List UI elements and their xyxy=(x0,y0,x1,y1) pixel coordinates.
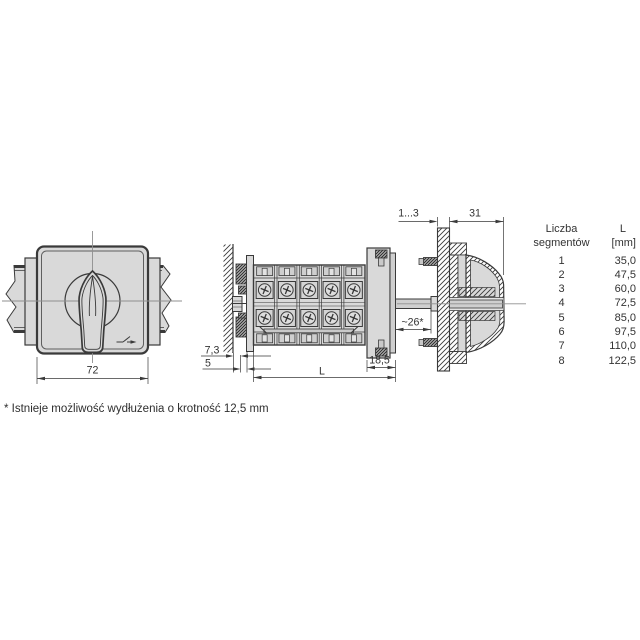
length-value: 122,5 xyxy=(596,354,640,368)
handle-front xyxy=(79,271,106,352)
length-value: 97,5 xyxy=(596,325,640,339)
segments-count: 4 xyxy=(527,296,596,310)
panel-view: 1...3 31 xyxy=(397,208,526,372)
dim-31-label: 31 xyxy=(469,208,481,220)
dim-L-label: L xyxy=(319,366,325,378)
rail-clamp-left xyxy=(25,258,37,345)
handle-knob-section xyxy=(450,243,505,364)
length-value: 47,5 xyxy=(596,268,640,282)
segments-count: 3 xyxy=(527,282,596,296)
footnote: * Istnieje możliwość wydłużenia o krotno… xyxy=(4,402,269,417)
segments-count: 6 xyxy=(527,325,596,339)
table-row: 360,0 xyxy=(527,282,640,296)
dim-1-3-label: 1...3 xyxy=(398,208,419,220)
dim-72-label: 72 xyxy=(87,365,99,377)
segments-count: 5 xyxy=(527,311,596,325)
panel-stud-bottom xyxy=(419,339,438,347)
table-row: 7110,0 xyxy=(527,339,640,353)
table-header-length-line2: [mm] xyxy=(596,236,636,250)
segments-count: 1 xyxy=(527,254,596,268)
mounting-bracket xyxy=(233,256,254,352)
table-header-segments-line1: Liczba xyxy=(527,222,596,236)
length-value: 110,0 xyxy=(596,339,640,353)
table-row: 472,5 xyxy=(527,296,640,310)
length-value: 35,0 xyxy=(596,254,640,268)
dim-26-label: ~26* xyxy=(401,317,423,329)
table-row: 8122,5 xyxy=(527,354,640,368)
length-value: 85,0 xyxy=(596,311,640,325)
dim-7-3-label: 7,3 xyxy=(205,345,220,357)
length-value: 72,5 xyxy=(596,296,640,310)
drawing-page: 72 xyxy=(0,0,640,640)
front-plate xyxy=(367,248,396,358)
mounting-wall xyxy=(224,244,234,353)
mounting-panel xyxy=(438,228,450,371)
dimension-table: Liczba segmentów L [mm] 135,0 247,5 360,… xyxy=(527,222,640,368)
table-row: 135,0 xyxy=(527,254,640,268)
table-row: 697,5 xyxy=(527,325,640,339)
table-row: 247,5 xyxy=(527,268,640,282)
rail-clamp-right xyxy=(148,258,160,345)
segments-count: 8 xyxy=(527,354,596,368)
front-view: 72 xyxy=(2,231,182,384)
panel-stud-top xyxy=(419,258,438,266)
dim-18-5-label: 18,5 xyxy=(369,355,390,367)
segments-count: 7 xyxy=(527,339,596,353)
switch-body xyxy=(254,265,366,345)
table-row: 585,0 xyxy=(527,311,640,325)
table-header: Liczba segmentów L [mm] xyxy=(527,222,640,251)
side-view: 7,3 5 L 18,5 ~26* xyxy=(201,244,431,382)
segments-count: 2 xyxy=(527,268,596,282)
dim-5-label: 5 xyxy=(205,358,211,370)
table-header-segments-line2: segmentów xyxy=(527,236,596,250)
length-value: 60,0 xyxy=(596,282,640,296)
table-header-length-line1: L xyxy=(596,222,636,236)
